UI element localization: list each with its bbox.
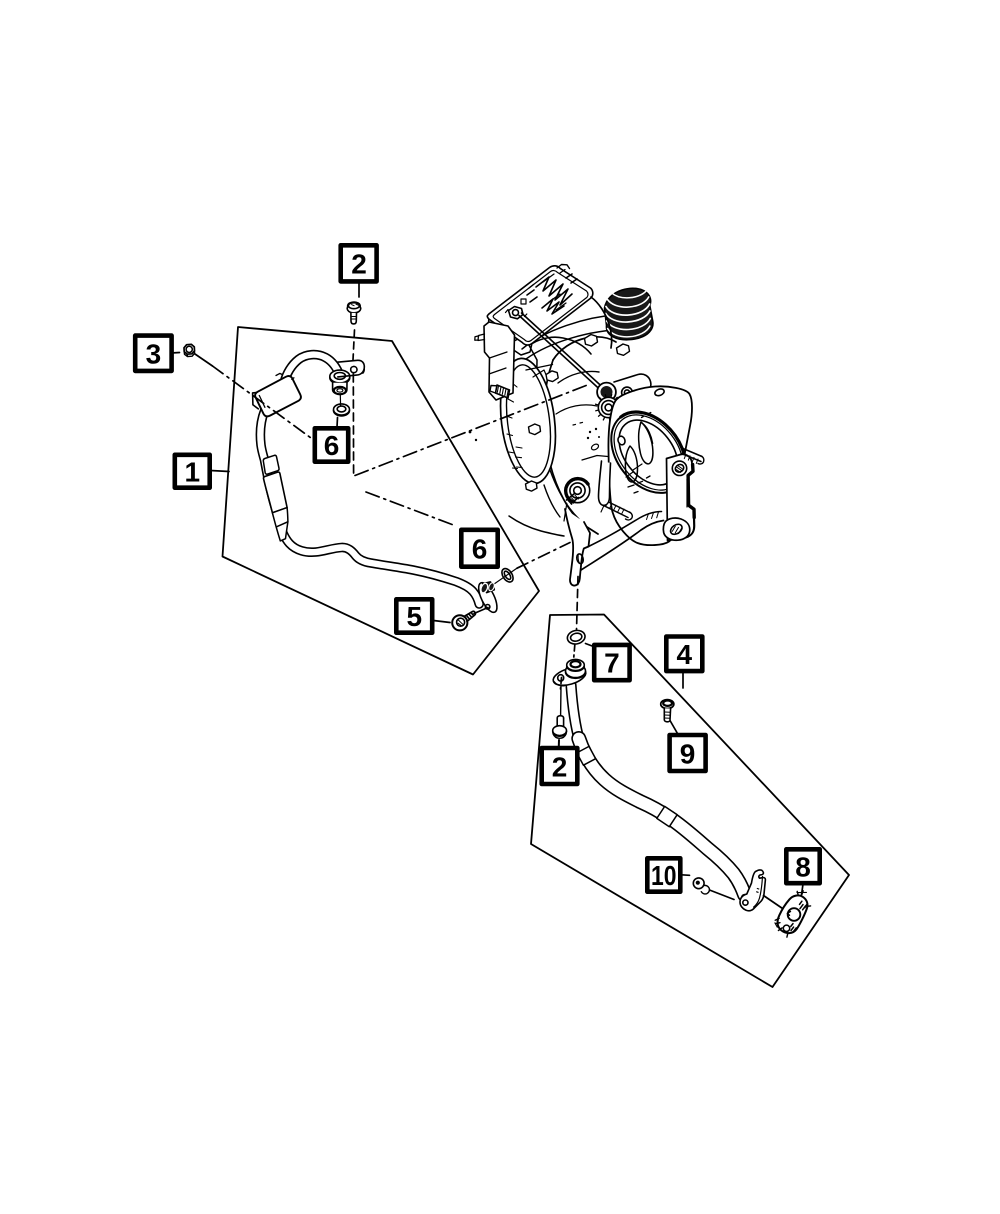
svg-text:9: 9 [680, 739, 696, 770]
svg-text:5: 5 [407, 601, 423, 632]
svg-text:2: 2 [351, 249, 367, 280]
svg-text:7: 7 [604, 648, 620, 679]
svg-text:10: 10 [651, 860, 677, 891]
svg-text:8: 8 [795, 851, 811, 882]
svg-text:1: 1 [185, 456, 201, 487]
svg-text:3: 3 [146, 338, 162, 369]
svg-text:2: 2 [552, 751, 568, 782]
svg-text:6: 6 [324, 430, 340, 461]
svg-text:6: 6 [472, 533, 488, 564]
svg-text:4: 4 [677, 639, 693, 670]
